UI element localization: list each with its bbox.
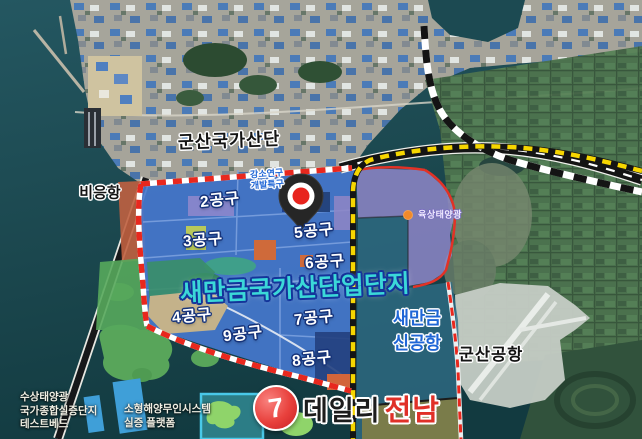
new-airport-label: 새만금 신공항	[393, 306, 441, 356]
marine-system-line2: 실증 플랫폼	[124, 417, 211, 431]
bieung-port-label: 비응항	[79, 182, 120, 203]
watermark-name-black: 데일리	[303, 389, 381, 428]
new-airport-line2: 신공항	[393, 331, 441, 356]
gunsan-industrial-label: 군산국가산단	[177, 126, 280, 155]
onshore-solar-dot	[403, 210, 413, 220]
watermark: 7 데일리 전남	[253, 385, 440, 431]
marine-system-label: 소형해양무인시스템 실증 플랫폼	[124, 403, 211, 430]
new-airport-line1: 새만금	[393, 306, 441, 331]
watermark-name-red: 전남	[385, 387, 440, 429]
zone-label-8: 8공구	[291, 345, 333, 371]
onshore-solar-label: 육상태양광	[418, 208, 462, 221]
daily-jeonnam-logo-icon: 7	[250, 382, 302, 434]
zone-label-2: 2공구	[199, 186, 241, 212]
satellite-map: 군산국가산단 비응항 강소연구 개발특구 2공구 3공구 5공구 6공구 4공구…	[0, 0, 642, 439]
floating-solar-line1: 수상태양광	[20, 391, 97, 405]
zone-label-7: 7공구	[293, 304, 335, 330]
zone-label-5: 5공구	[293, 217, 335, 243]
floating-solar-label: 수상태양광 국가종합실증단지 테스트베드	[20, 391, 97, 432]
gunsan-airport-label: 군산공항	[459, 341, 524, 365]
zone-label-3: 3공구	[182, 227, 224, 252]
floating-solar-line2: 국가종합실증단지	[20, 405, 97, 419]
floating-solar-line3: 테스트베드	[20, 418, 97, 432]
research-zone-label: 강소연구 개발특구	[250, 167, 285, 190]
marine-system-line1: 소형해양무인시스템	[124, 403, 211, 417]
